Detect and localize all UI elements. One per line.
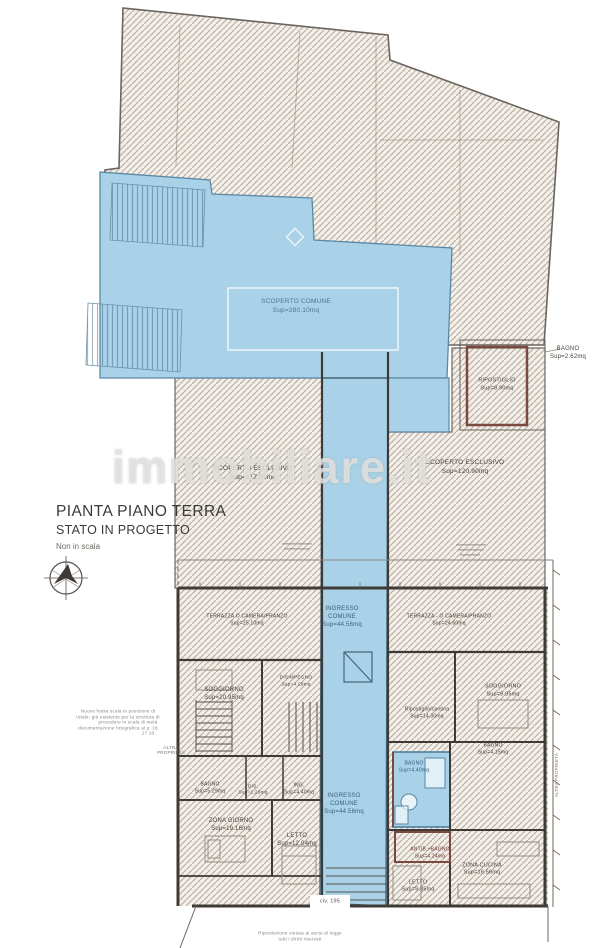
title-block: PIANTA PIANO TERRA STATO IN PROGETTO Non… bbox=[56, 503, 226, 551]
plan-subtitle: STATO IN PROGETTO bbox=[56, 523, 226, 537]
floor-plan-page: SCOPERTO COMUNESup=280.10mqSCOPERTO ESCL… bbox=[0, 0, 610, 948]
floor-plan-drawing bbox=[0, 0, 610, 948]
corridor-common bbox=[320, 378, 388, 906]
plan-scale-note: Non in scala bbox=[56, 542, 226, 551]
street-number-chip bbox=[310, 895, 350, 908]
plan-title: PIANTA PIANO TERRA bbox=[56, 503, 226, 521]
north-arrow-icon bbox=[42, 554, 90, 607]
